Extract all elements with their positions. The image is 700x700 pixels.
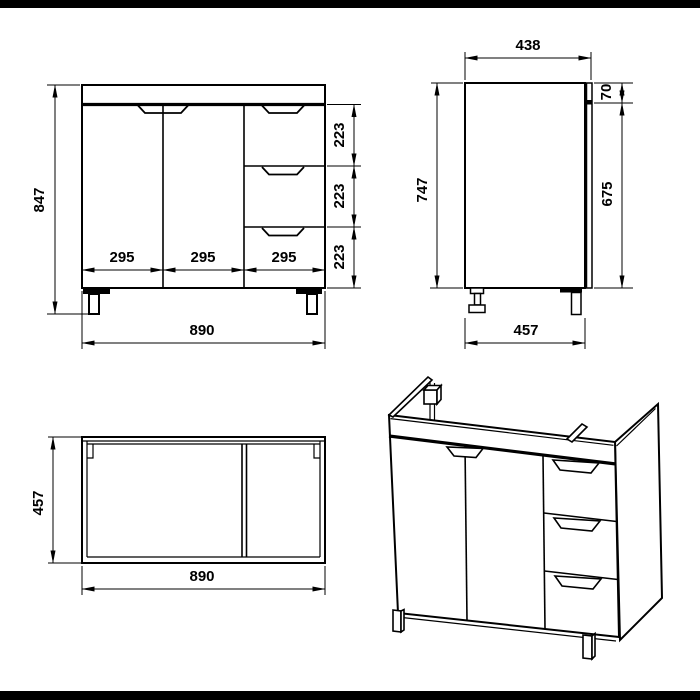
iso-right-leg-front bbox=[583, 635, 592, 659]
top-outline bbox=[82, 437, 325, 563]
front-right-leg bbox=[307, 294, 317, 314]
dim-front-drawer-3: 223 bbox=[331, 244, 348, 269]
dim-side-body-height: 747 bbox=[414, 177, 431, 202]
iso-left-leg-front bbox=[393, 610, 401, 632]
dim-side-top-rail: 70 bbox=[598, 84, 615, 101]
iso-left-leg-side bbox=[401, 610, 404, 633]
dim-front-drawer-1: 223 bbox=[331, 122, 348, 147]
side-panel-gap bbox=[586, 100, 593, 105]
dim-top-width: 890 bbox=[189, 568, 214, 585]
iso-view bbox=[389, 377, 662, 659]
dim-front-section-1: 295 bbox=[109, 249, 134, 266]
dim-front-overall-width: 890 bbox=[189, 322, 214, 339]
side-right-leg bbox=[572, 293, 582, 315]
dim-front-section-2: 295 bbox=[190, 249, 215, 266]
dim-front-drawer-2: 223 bbox=[331, 183, 348, 208]
side-left-leg-plate bbox=[471, 288, 484, 294]
technical-drawing-page: 847 295 295 295 223 223 223 890 bbox=[0, 0, 700, 700]
letterbox-top bbox=[0, 0, 700, 8]
iso-wall-bracket-front bbox=[424, 390, 437, 404]
dim-side-front-panel-height: 675 bbox=[599, 181, 616, 206]
letterbox-bottom bbox=[0, 691, 700, 700]
side-view: 438 747 70 675 457 bbox=[414, 37, 633, 349]
front-left-leg bbox=[89, 294, 99, 314]
side-body-outline bbox=[465, 83, 585, 288]
dim-side-top-depth: 438 bbox=[515, 37, 540, 54]
top-carcass bbox=[82, 437, 325, 563]
iso-side-panel bbox=[615, 404, 662, 640]
side-left-leg-stem bbox=[475, 294, 481, 306]
top-view: 457 890 bbox=[30, 437, 325, 595]
dim-side-bottom-depth: 457 bbox=[513, 322, 538, 339]
iso-right-leg-side bbox=[592, 634, 595, 660]
dim-front-total-height: 847 bbox=[31, 187, 48, 212]
vanity-cabinet-drawing: 847 295 295 295 223 223 223 890 bbox=[0, 0, 700, 700]
side-front-panel bbox=[587, 83, 593, 288]
side-cabinet bbox=[465, 83, 593, 315]
dim-front-section-3: 295 bbox=[271, 249, 296, 266]
side-left-leg-foot bbox=[469, 305, 485, 313]
iso-wall-bracket-side bbox=[437, 386, 441, 405]
front-view: 847 295 295 295 223 223 223 890 bbox=[31, 85, 361, 349]
dim-top-depth: 457 bbox=[30, 490, 47, 515]
front-cabinet bbox=[82, 85, 325, 314]
